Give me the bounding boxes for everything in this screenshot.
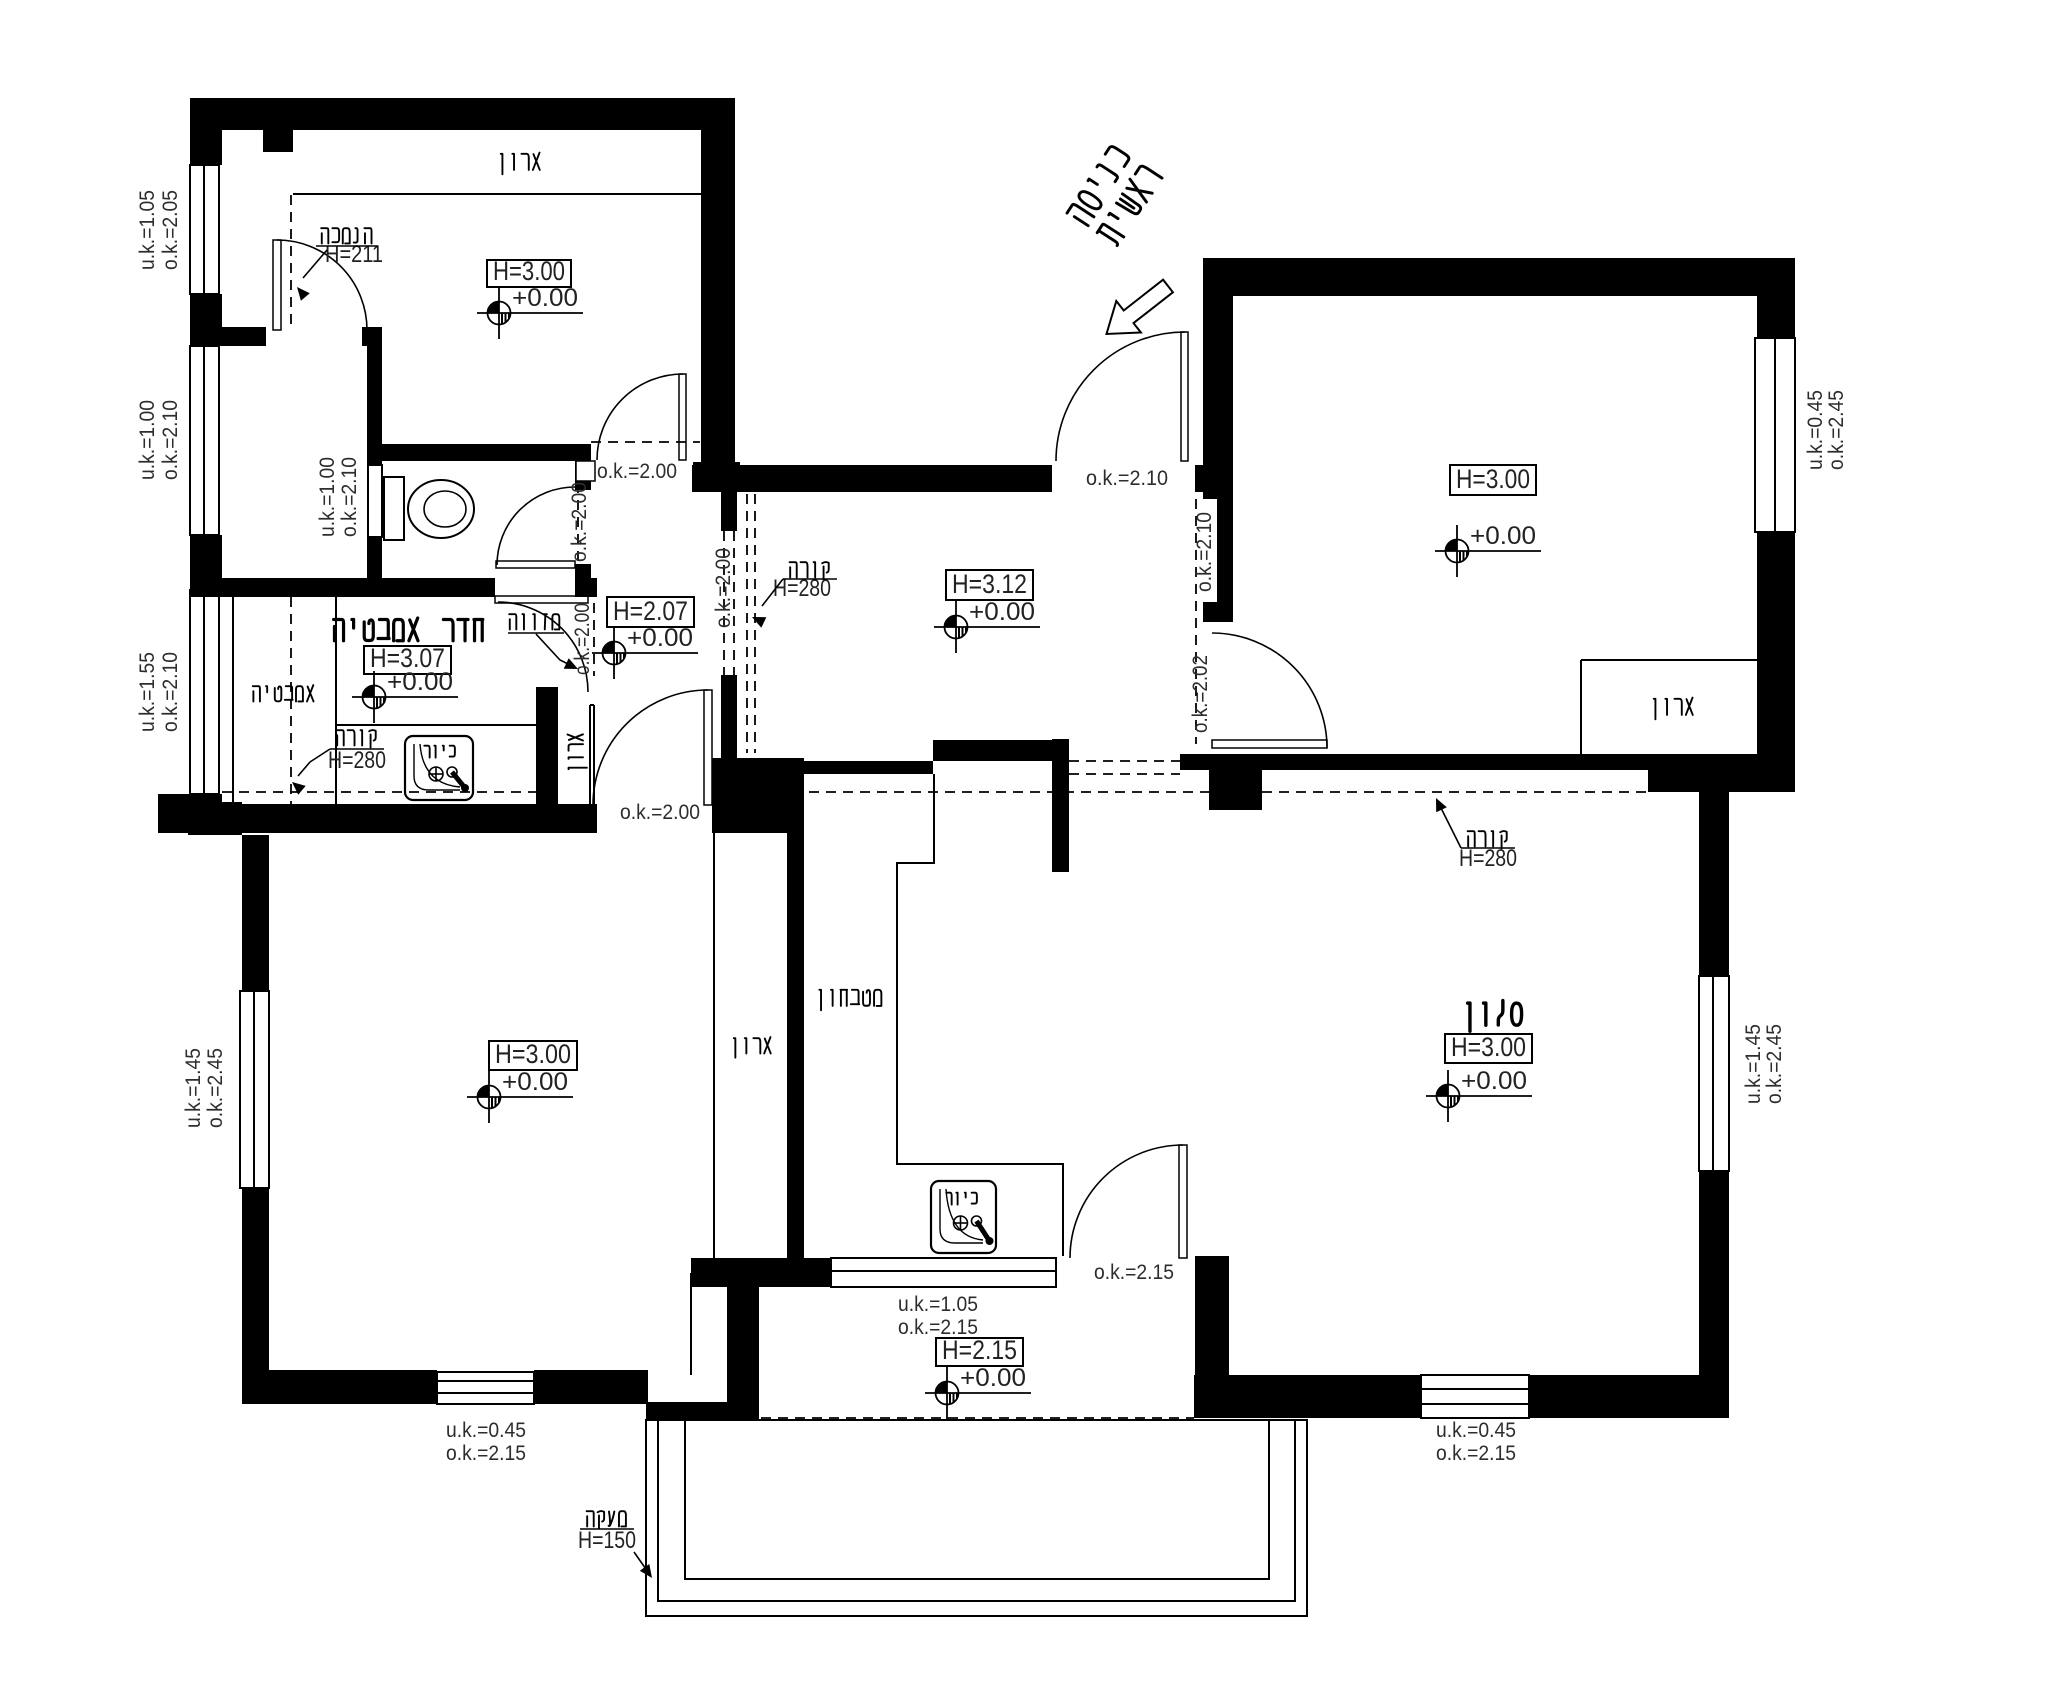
svg-text:o.k.=2.02: o.k.=2.02: [1189, 655, 1212, 733]
svg-text:+0.00: +0.00: [387, 668, 453, 696]
svg-text:+0.00: +0.00: [1461, 1067, 1527, 1095]
svg-text:u.k.=1.45: u.k.=1.45: [1742, 1024, 1765, 1104]
svg-text:H=280: H=280: [328, 747, 386, 774]
svg-text:+0.00: +0.00: [969, 598, 1035, 626]
svg-text:H=211: H=211: [325, 241, 383, 268]
svg-text:o.k.=2.10: o.k.=2.10: [159, 652, 182, 732]
svg-text:o.k.=2.15: o.k.=2.15: [1436, 1442, 1516, 1465]
svg-text:+0.00: +0.00: [502, 1068, 568, 1096]
svg-text:o.k.=2.15: o.k.=2.15: [1094, 1261, 1174, 1284]
svg-text:H=3.00: H=3.00: [1451, 1032, 1526, 1062]
svg-text:o.k.=2.00: o.k.=2.00: [571, 603, 594, 675]
svg-text:u.k.=1.05: u.k.=1.05: [898, 1293, 978, 1316]
svg-text:u.k.=0.45: u.k.=0.45: [446, 1419, 526, 1442]
svg-text:H=3.00: H=3.00: [495, 1039, 571, 1069]
svg-text:o.k.=2.00: o.k.=2.00: [712, 548, 735, 628]
svg-text:+0.00: +0.00: [960, 1364, 1026, 1392]
svg-text:u.k.=0.45: u.k.=0.45: [1436, 1419, 1516, 1442]
svg-text:H=3.00: H=3.00: [493, 256, 565, 286]
svg-text:o.k.=2.45: o.k.=2.45: [1825, 390, 1848, 470]
svg-text:o.k.=2.15: o.k.=2.15: [898, 1316, 978, 1339]
svg-text:H=280: H=280: [1459, 845, 1517, 872]
svg-text:o.k.=2.10: o.k.=2.10: [338, 457, 361, 537]
svg-text:H=150: H=150: [578, 1527, 636, 1554]
svg-text:o.k.=2.05: o.k.=2.05: [159, 190, 182, 270]
svg-text:u.k.=1.00: u.k.=1.00: [316, 457, 339, 537]
svg-text:o.k.=2.10: o.k.=2.10: [159, 400, 182, 480]
svg-text:o.k.=2.00: o.k.=2.00: [597, 460, 677, 483]
svg-text:o.k.=2.45: o.k.=2.45: [204, 1048, 227, 1128]
svg-text:H=3.12: H=3.12: [952, 569, 1027, 599]
svg-text:u.k.=1.00: u.k.=1.00: [136, 400, 159, 480]
svg-text:H=3.00: H=3.00: [1456, 464, 1530, 494]
svg-text:+0.00: +0.00: [1470, 522, 1536, 550]
svg-text:o.k.=2.00: o.k.=2.00: [620, 801, 700, 824]
svg-text:u.k.=1.45: u.k.=1.45: [182, 1048, 205, 1128]
svg-text:o.k.=2.00: o.k.=2.00: [568, 482, 591, 562]
svg-text:u.k.=1.05: u.k.=1.05: [136, 190, 159, 270]
svg-text:o.k.=2.10: o.k.=2.10: [1193, 512, 1216, 592]
svg-text:+0.00: +0.00: [512, 284, 578, 312]
svg-text:o.k.=2.45: o.k.=2.45: [1763, 1024, 1786, 1104]
svg-text:+0.00: +0.00: [627, 624, 693, 652]
svg-text:o.k.=2.10: o.k.=2.10: [1086, 467, 1168, 490]
svg-text:u.k.=1.55: u.k.=1.55: [136, 652, 159, 732]
svg-text:o.k.=2.15: o.k.=2.15: [446, 1442, 526, 1465]
svg-text:H=2.07: H=2.07: [613, 596, 688, 626]
svg-text:u.k.=0.45: u.k.=0.45: [1804, 390, 1827, 470]
svg-text:H=2.15: H=2.15: [942, 1335, 1017, 1365]
